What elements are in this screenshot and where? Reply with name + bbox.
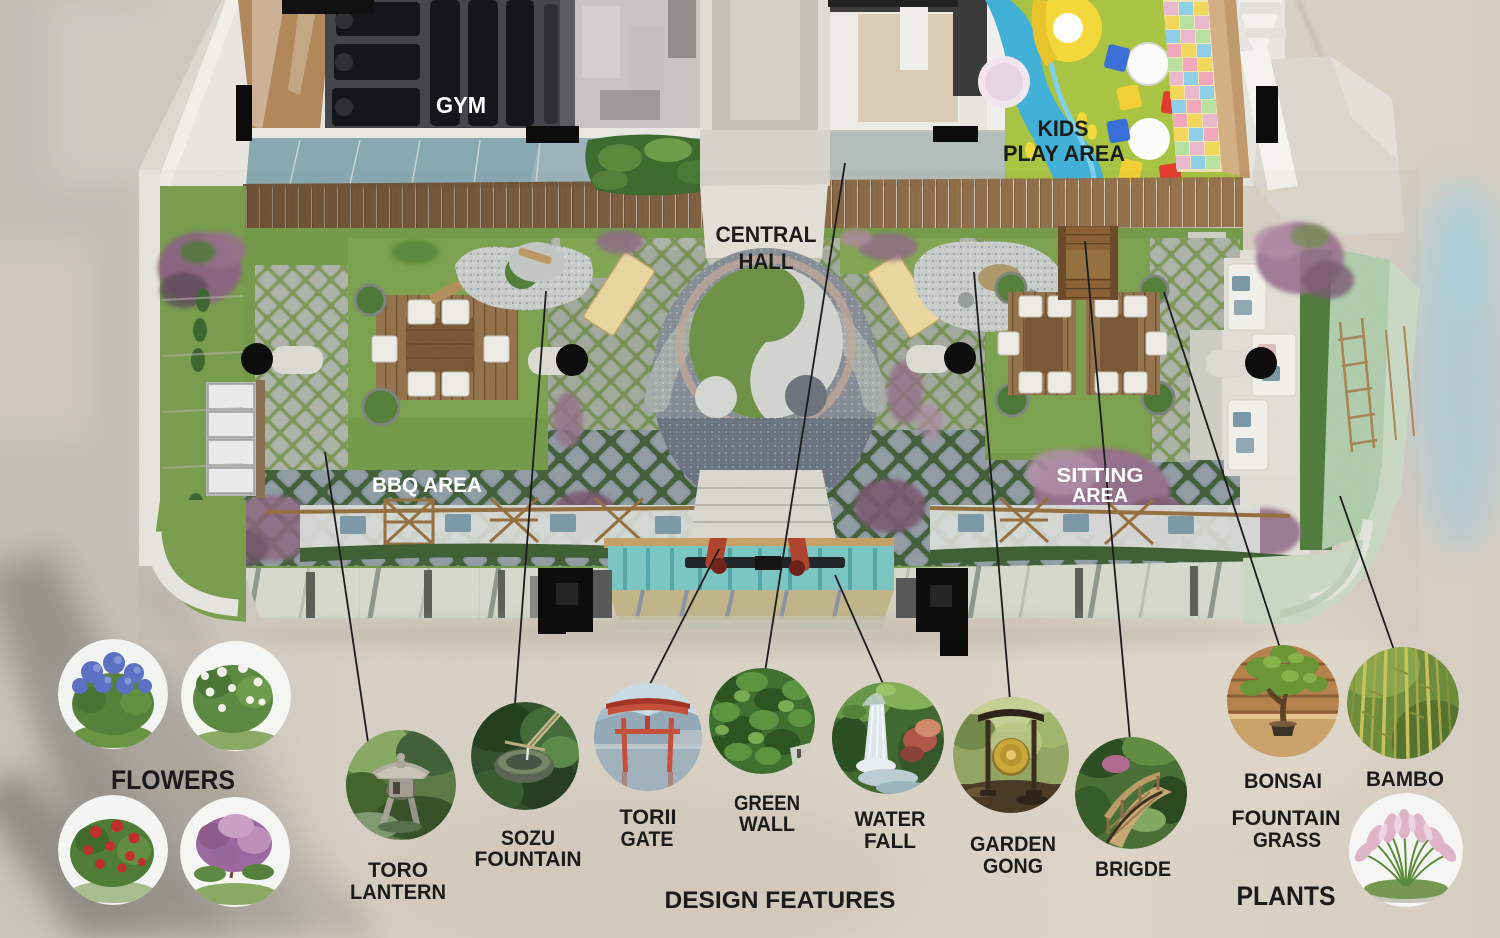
svg-text:FALL: FALL bbox=[864, 830, 916, 853]
svg-text:BONSAI: BONSAI bbox=[1244, 770, 1322, 793]
svg-text:WALL: WALL bbox=[739, 813, 795, 836]
svg-text:GONG: GONG bbox=[983, 855, 1043, 878]
svg-text:GYM: GYM bbox=[436, 92, 486, 118]
svg-text:FLOWERS: FLOWERS bbox=[111, 765, 235, 795]
svg-text:FOUNTAIN: FOUNTAIN bbox=[1232, 807, 1341, 830]
svg-text:FOUNTAIN: FOUNTAIN bbox=[475, 848, 582, 871]
svg-text:BAMBO: BAMBO bbox=[1366, 768, 1444, 791]
svg-text:BRIGDE: BRIGDE bbox=[1095, 858, 1171, 881]
svg-text:GREEN: GREEN bbox=[734, 792, 800, 815]
svg-text:GRASS: GRASS bbox=[1253, 829, 1321, 852]
svg-text:DESIGN FEATURES: DESIGN FEATURES bbox=[665, 887, 896, 914]
svg-text:SITTING: SITTING bbox=[1057, 465, 1144, 487]
svg-text:GARDEN: GARDEN bbox=[970, 833, 1056, 856]
svg-text:WATER: WATER bbox=[855, 808, 926, 831]
svg-text:TORO: TORO bbox=[368, 859, 428, 882]
svg-text:SOZU: SOZU bbox=[501, 827, 555, 850]
svg-text:HALL: HALL bbox=[739, 249, 794, 274]
svg-text:PLAY AREA: PLAY AREA bbox=[1003, 141, 1125, 166]
svg-text:BBQ AREA: BBQ AREA bbox=[372, 474, 482, 497]
svg-text:PLANTS: PLANTS bbox=[1237, 881, 1336, 911]
svg-text:AREA: AREA bbox=[1072, 485, 1128, 507]
svg-text:KIDS: KIDS bbox=[1038, 116, 1089, 141]
svg-text:TORII: TORII bbox=[620, 806, 677, 829]
svg-text:GATE: GATE bbox=[621, 828, 674, 851]
svg-text:CENTRAL: CENTRAL bbox=[716, 222, 817, 247]
svg-text:LANTERN: LANTERN bbox=[350, 881, 446, 904]
